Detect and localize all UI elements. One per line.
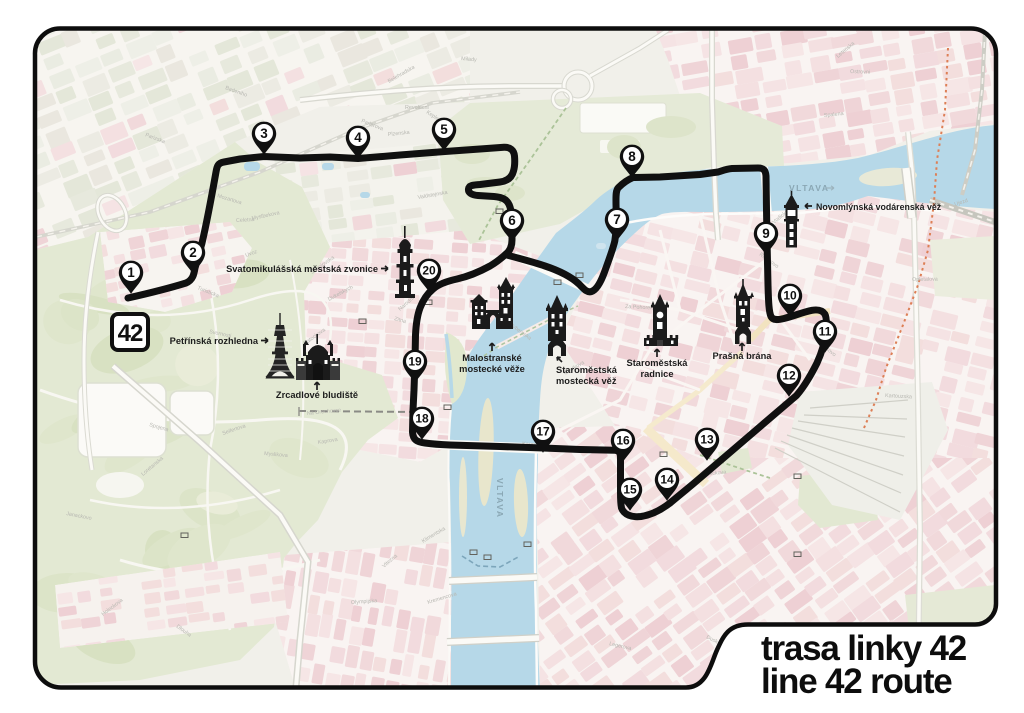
svg-text:11: 11: [819, 324, 832, 338]
svg-text:Svatomikulášská městská zvonic: Svatomikulášská městská zvonice: [226, 264, 378, 274]
svg-text:19: 19: [408, 354, 422, 368]
svg-text:9: 9: [762, 226, 770, 241]
svg-text:1: 1: [127, 265, 135, 280]
svg-text:Revolucni: Revolucni: [405, 105, 429, 111]
svg-text:16: 16: [616, 433, 630, 447]
svg-text:15: 15: [623, 482, 637, 496]
svg-text:VLTAVA: VLTAVA: [495, 478, 505, 518]
svg-text:3: 3: [260, 126, 268, 141]
svg-text:radnice: radnice: [640, 369, 673, 379]
svg-text:13: 13: [700, 432, 714, 446]
svg-text:4: 4: [354, 130, 362, 145]
svg-text:10: 10: [783, 288, 797, 302]
svg-text:Petřínská rozhledna: Petřínská rozhledna: [170, 336, 259, 346]
svg-text:Opletalova: Opletalova: [912, 277, 938, 283]
svg-text:Ostrovni: Ostrovni: [850, 69, 870, 76]
svg-text:6: 6: [508, 213, 516, 228]
svg-text:17: 17: [536, 424, 550, 438]
svg-text:VLTAVA: VLTAVA: [789, 183, 829, 193]
svg-text:line 42 route: line 42 route: [761, 662, 952, 701]
svg-text:Novomlýnská vodárenská věž: Novomlýnská vodárenská věž: [816, 202, 942, 212]
svg-text:5: 5: [440, 122, 448, 137]
svg-text:42: 42: [118, 320, 143, 347]
svg-text:Staroměstská: Staroměstská: [556, 365, 618, 375]
svg-text:Prašná brána: Prašná brána: [713, 351, 773, 361]
svg-text:8: 8: [628, 149, 636, 164]
svg-text:mostecká věž: mostecká věž: [556, 376, 617, 386]
svg-text:mostecké věže: mostecké věže: [459, 364, 525, 374]
svg-text:14: 14: [660, 472, 674, 486]
svg-text:20: 20: [422, 263, 436, 277]
svg-text:Malostranské: Malostranské: [462, 353, 521, 363]
svg-text:12: 12: [782, 368, 796, 382]
svg-text:18: 18: [415, 411, 429, 425]
svg-text:Zrcadlové bludiště: Zrcadlové bludiště: [276, 390, 358, 400]
svg-text:Staroměstská: Staroměstská: [627, 358, 689, 368]
svg-text:7: 7: [613, 212, 621, 227]
svg-text:2: 2: [189, 245, 197, 260]
